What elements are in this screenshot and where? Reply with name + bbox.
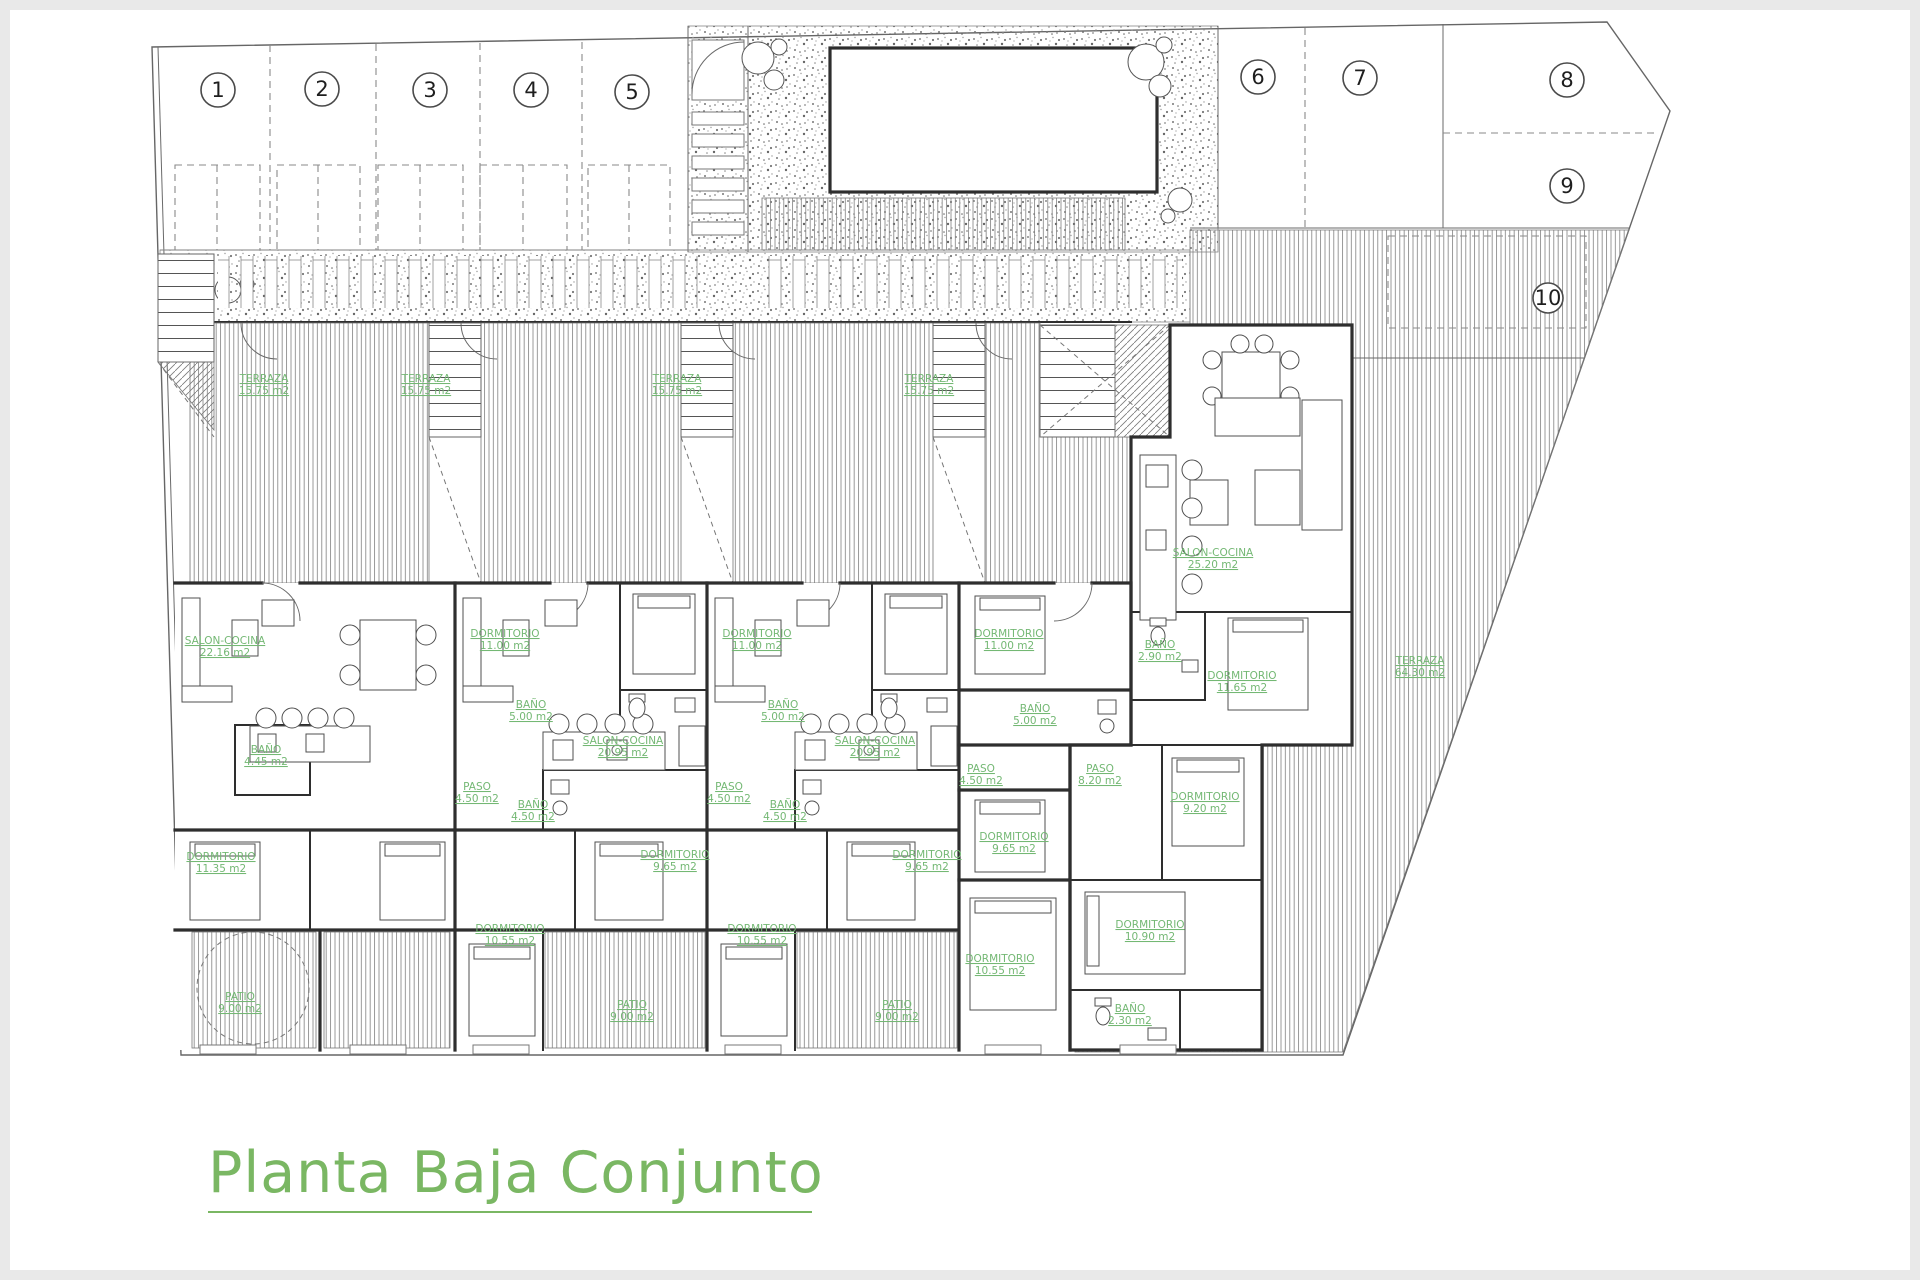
svg-text:DORMITORIO: DORMITORIO — [186, 851, 255, 863]
parking-space-1: 1 — [201, 73, 235, 107]
svg-text:2: 2 — [315, 77, 328, 101]
parking-space-6: 6 — [1241, 60, 1275, 94]
svg-text:15.75 m2: 15.75 m2 — [652, 385, 702, 397]
svg-text:BAÑO: BAÑO — [1020, 702, 1051, 715]
svg-text:BAÑO: BAÑO — [251, 743, 282, 756]
parking-space-5: 5 — [615, 75, 649, 109]
svg-text:8.20 m2: 8.20 m2 — [1078, 775, 1122, 787]
parking-space-4: 4 — [514, 73, 548, 107]
svg-text:4.50 m2: 4.50 m2 — [455, 793, 499, 805]
svg-text:BAÑO: BAÑO — [516, 698, 547, 711]
svg-text:SALON-COCINA: SALON-COCINA — [835, 735, 916, 747]
room-label-terraza-u4: TERRAZA15.75 m2 — [904, 373, 955, 397]
svg-text:9.20 m2: 9.20 m2 — [1183, 803, 1227, 815]
svg-text:2.90 m2: 2.90 m2 — [1138, 651, 1182, 663]
stairs-east-unit — [1040, 325, 1170, 437]
parking-space-10: 10 — [1533, 283, 1563, 313]
svg-text:7: 7 — [1353, 66, 1366, 90]
svg-text:9.65 m2: 9.65 m2 — [653, 861, 697, 873]
svg-text:4: 4 — [524, 78, 537, 102]
svg-text:BAÑO: BAÑO — [770, 798, 801, 811]
svg-text:9.00 m2: 9.00 m2 — [610, 1011, 654, 1023]
svg-text:DORMITORIO: DORMITORIO — [974, 628, 1043, 640]
svg-text:BAÑO: BAÑO — [518, 798, 549, 811]
svg-text:10: 10 — [1535, 286, 1562, 310]
room-label-dorm1-u4: DORMITORIO11.00 m2 — [974, 628, 1043, 652]
svg-text:DORMITORIO: DORMITORIO — [979, 831, 1048, 843]
svg-text:TERRAZA: TERRAZA — [239, 373, 290, 385]
room-label-terraza-u2: TERRAZA15.75 m2 — [401, 373, 452, 397]
svg-text:8: 8 — [1560, 68, 1573, 92]
drawing-title: Planta Baja Conjunto — [208, 1140, 824, 1212]
svg-text:DORMITORIO: DORMITORIO — [1207, 670, 1276, 682]
swimming-pool — [830, 48, 1157, 192]
svg-text:PASO: PASO — [715, 781, 743, 793]
floor-plan-drawing: 1 2 3 4 5 6 7 8 9 10 TERRAZA15.75 m2 SAL… — [0, 0, 1920, 1280]
room-label-terraza-u1: TERRAZA15.75 m2 — [239, 373, 290, 397]
svg-text:BAÑO: BAÑO — [768, 698, 799, 711]
terrace-2 — [481, 323, 681, 583]
svg-text:DORMITORIO: DORMITORIO — [722, 628, 791, 640]
svg-text:BAÑO: BAÑO — [1115, 1002, 1146, 1015]
svg-text:64.30 m2: 64.30 m2 — [1395, 667, 1445, 679]
room-label-dorm3-u4: DORMITORIO10.55 m2 — [965, 953, 1034, 977]
parking-space-7: 7 — [1343, 61, 1377, 95]
room-label-dorm1-u2: DORMITORIO11.00 m2 — [470, 628, 539, 652]
svg-text:SALON-COCINA: SALON-COCINA — [185, 635, 266, 647]
svg-text:9.65 m2: 9.65 m2 — [992, 843, 1036, 855]
svg-text:BAÑO: BAÑO — [1145, 638, 1176, 651]
svg-text:DORMITORIO: DORMITORIO — [965, 953, 1034, 965]
svg-text:SALON-COCINA: SALON-COCINA — [1173, 547, 1254, 559]
pergola-walkway — [160, 250, 1190, 322]
svg-text:11.00 m2: 11.00 m2 — [480, 640, 530, 652]
svg-text:10.55 m2: 10.55 m2 — [975, 965, 1025, 977]
svg-text:9.00 m2: 9.00 m2 — [218, 1003, 262, 1015]
parking-space-3: 3 — [413, 73, 447, 107]
svg-text:15.75 m2: 15.75 m2 — [904, 385, 954, 397]
svg-text:2.30 m2: 2.30 m2 — [1108, 1015, 1152, 1027]
svg-text:DORMITORIO: DORMITORIO — [475, 923, 544, 935]
svg-text:DORMITORIO: DORMITORIO — [1115, 919, 1184, 931]
svg-text:4.45 m2: 4.45 m2 — [244, 756, 288, 768]
svg-text:20.95 m2: 20.95 m2 — [598, 747, 648, 759]
floor-plan-page: 1 2 3 4 5 6 7 8 9 10 TERRAZA15.75 m2 SAL… — [0, 0, 1920, 1280]
svg-text:15.75 m2: 15.75 m2 — [401, 385, 451, 397]
svg-text:DORMITORIO: DORMITORIO — [640, 849, 709, 861]
page-title: Planta Baja Conjunto — [208, 1140, 824, 1206]
svg-text:6: 6 — [1251, 65, 1264, 89]
svg-text:9: 9 — [1560, 174, 1573, 198]
svg-text:TERRAZA: TERRAZA — [652, 373, 703, 385]
svg-text:5.00 m2: 5.00 m2 — [1013, 715, 1057, 727]
svg-text:SALON-COCINA: SALON-COCINA — [583, 735, 664, 747]
room-label-terraza-ue: TERRAZA64.30 m2 — [1395, 655, 1446, 679]
room-label-dorm1-ue: DORMITORIO11.65 m2 — [1207, 670, 1276, 694]
svg-text:9.00 m2: 9.00 m2 — [875, 1011, 919, 1023]
svg-text:1: 1 — [211, 78, 224, 102]
room-label-dorm1-u3: DORMITORIO11.00 m2 — [722, 628, 791, 652]
parking-space-2: 2 — [305, 72, 339, 106]
svg-text:10.55 m2: 10.55 m2 — [737, 935, 787, 947]
svg-text:DORMITORIO: DORMITORIO — [470, 628, 539, 640]
svg-text:11.00 m2: 11.00 m2 — [984, 640, 1034, 652]
parking-space-9: 9 — [1550, 169, 1584, 203]
svg-text:11.00 m2: 11.00 m2 — [732, 640, 782, 652]
terraces — [190, 323, 1131, 583]
svg-text:PASO: PASO — [967, 763, 995, 775]
svg-text:5.00 m2: 5.00 m2 — [761, 711, 805, 723]
svg-text:DORMITORIO: DORMITORIO — [727, 923, 796, 935]
terrace-3 — [733, 323, 933, 583]
pool-deck — [762, 198, 1125, 250]
svg-text:15.75 m2: 15.75 m2 — [239, 385, 289, 397]
svg-text:4.50 m2: 4.50 m2 — [763, 811, 807, 823]
svg-text:DORMITORIO: DORMITORIO — [1170, 791, 1239, 803]
room-label-dorm3-u2: DORMITORIO10.55 m2 — [475, 923, 544, 947]
svg-text:5.00 m2: 5.00 m2 — [509, 711, 553, 723]
svg-text:10.90 m2: 10.90 m2 — [1125, 931, 1175, 943]
room-label-dorm-u1: DORMITORIO11.35 m2 — [186, 851, 255, 875]
svg-text:10.55 m2: 10.55 m2 — [485, 935, 535, 947]
svg-text:3: 3 — [423, 78, 436, 102]
parking-space-8: 8 — [1550, 63, 1584, 97]
svg-text:TERRAZA: TERRAZA — [1395, 655, 1446, 667]
svg-text:TERRAZA: TERRAZA — [401, 373, 452, 385]
svg-text:4.50 m2: 4.50 m2 — [511, 811, 555, 823]
svg-text:PATIO: PATIO — [617, 999, 647, 1011]
svg-text:DORMITORIO: DORMITORIO — [892, 849, 961, 861]
terrace-1 — [190, 323, 429, 583]
room-label-dorm3-ue: DORMITORIO10.90 m2 — [1115, 919, 1184, 943]
svg-text:4.50 m2: 4.50 m2 — [959, 775, 1003, 787]
svg-text:4.50 m2: 4.50 m2 — [707, 793, 751, 805]
room-label-dorm3-u3: DORMITORIO10.55 m2 — [727, 923, 796, 947]
svg-text:PATIO: PATIO — [225, 991, 255, 1003]
svg-text:25.20 m2: 25.20 m2 — [1188, 559, 1238, 571]
svg-text:9.65 m2: 9.65 m2 — [905, 861, 949, 873]
svg-text:PASO: PASO — [463, 781, 491, 793]
svg-text:22.16 m2: 22.16 m2 — [200, 647, 250, 659]
svg-text:PATIO: PATIO — [882, 999, 912, 1011]
svg-text:11.65 m2: 11.65 m2 — [1217, 682, 1267, 694]
room-label-terraza-u3: TERRAZA15.75 m2 — [652, 373, 703, 397]
svg-text:20.95 m2: 20.95 m2 — [850, 747, 900, 759]
svg-text:5: 5 — [625, 80, 638, 104]
svg-text:11.35 m2: 11.35 m2 — [196, 863, 246, 875]
svg-text:TERRAZA: TERRAZA — [904, 373, 955, 385]
svg-text:PASO: PASO — [1086, 763, 1114, 775]
